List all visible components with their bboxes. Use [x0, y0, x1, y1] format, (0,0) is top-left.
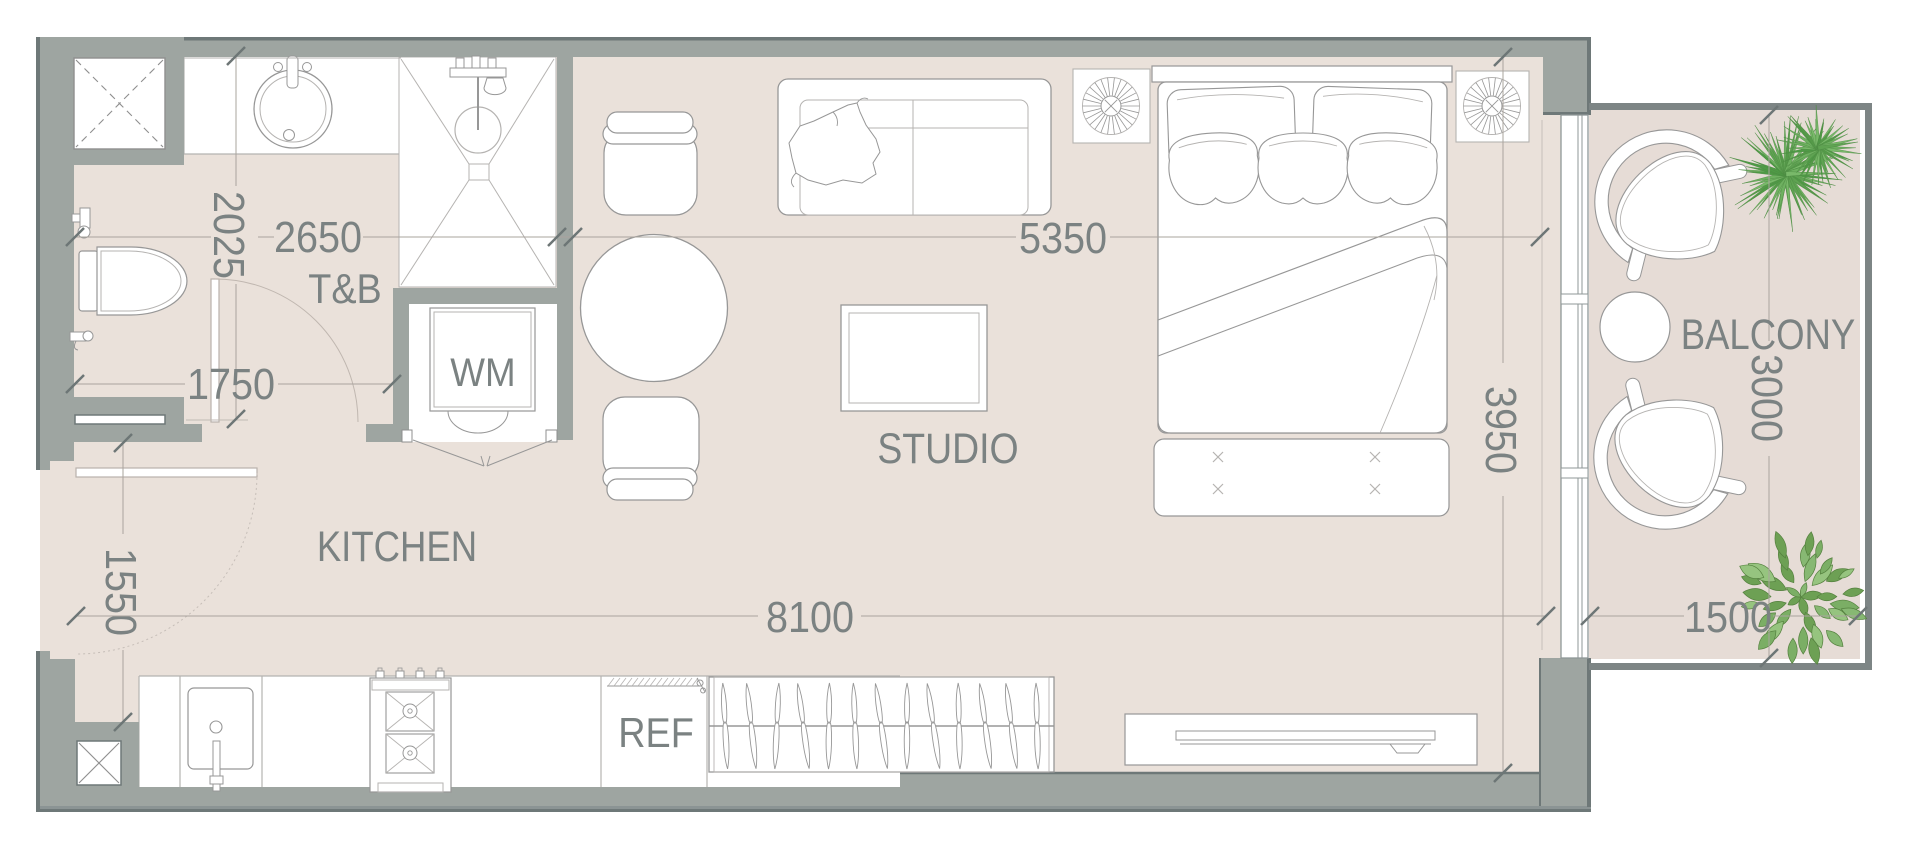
svg-text:WM: WM: [450, 351, 515, 396]
svg-text:T&B: T&B: [308, 266, 381, 312]
svg-text:8100: 8100: [766, 592, 854, 641]
svg-text:1500: 1500: [1684, 592, 1772, 641]
svg-text:STUDIO: STUDIO: [877, 425, 1018, 473]
svg-text:2025: 2025: [205, 191, 254, 279]
svg-text:REF: REF: [618, 710, 694, 756]
svg-text:2650: 2650: [274, 212, 362, 261]
svg-text:1550: 1550: [97, 548, 146, 636]
svg-text:1750: 1750: [187, 359, 275, 408]
svg-text:3950: 3950: [1477, 386, 1526, 474]
svg-text:5350: 5350: [1019, 213, 1107, 262]
svg-text:BALCONY: BALCONY: [1681, 311, 1856, 358]
svg-text:3000: 3000: [1743, 354, 1792, 442]
svg-text:KITCHEN: KITCHEN: [317, 523, 477, 570]
